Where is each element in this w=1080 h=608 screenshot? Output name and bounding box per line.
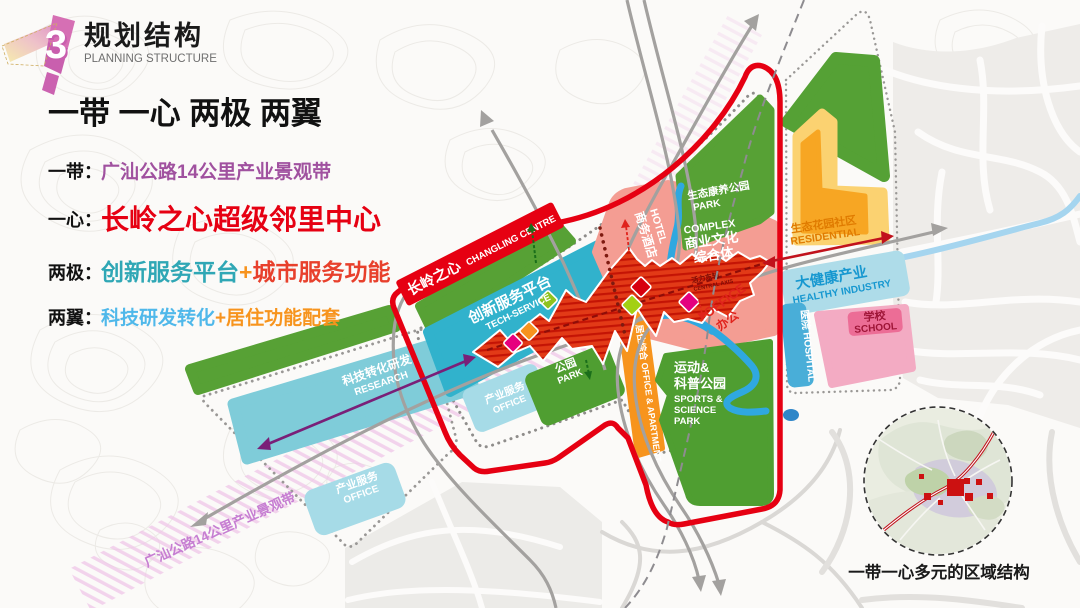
svg-text:长岭之心超级邻里中心: 长岭之心超级邻里中心 bbox=[101, 203, 381, 235]
svg-text:一带 一心 两极 两翼: 一带 一心 两极 两翼 bbox=[48, 96, 322, 131]
svg-text:PLANNING STRUCTURE: PLANNING STRUCTURE bbox=[84, 53, 217, 65]
svg-text:运动&: 运动& bbox=[674, 360, 709, 375]
svg-text:SPORTS &: SPORTS & bbox=[674, 394, 723, 405]
svg-text:科技研发转化+居住功能配套: 科技研发转化+居住功能配套 bbox=[101, 306, 341, 329]
svg-text:SCIENCE: SCIENCE bbox=[674, 405, 716, 416]
svg-text:规划结构: 规划结构 bbox=[84, 21, 204, 51]
svg-text:创新服务平台+城市服务功能: 创新服务平台+城市服务功能 bbox=[100, 259, 390, 285]
svg-text:两极：: 两极： bbox=[48, 263, 102, 283]
svg-text:两翼：: 两翼： bbox=[48, 308, 102, 328]
svg-text:PARK: PARK bbox=[674, 416, 700, 427]
svg-text:广汕公路14公里产业景观带: 广汕公路14公里产业景观带 bbox=[101, 160, 331, 183]
svg-text:一带：: 一带： bbox=[48, 162, 102, 182]
svg-text:科普公园: 科普公园 bbox=[674, 376, 726, 391]
svg-text:一心：: 一心： bbox=[48, 210, 102, 230]
svg-text:3: 3 bbox=[45, 23, 67, 67]
svg-text:一带一心多元的区域结构: 一带一心多元的区域结构 bbox=[848, 562, 1030, 582]
